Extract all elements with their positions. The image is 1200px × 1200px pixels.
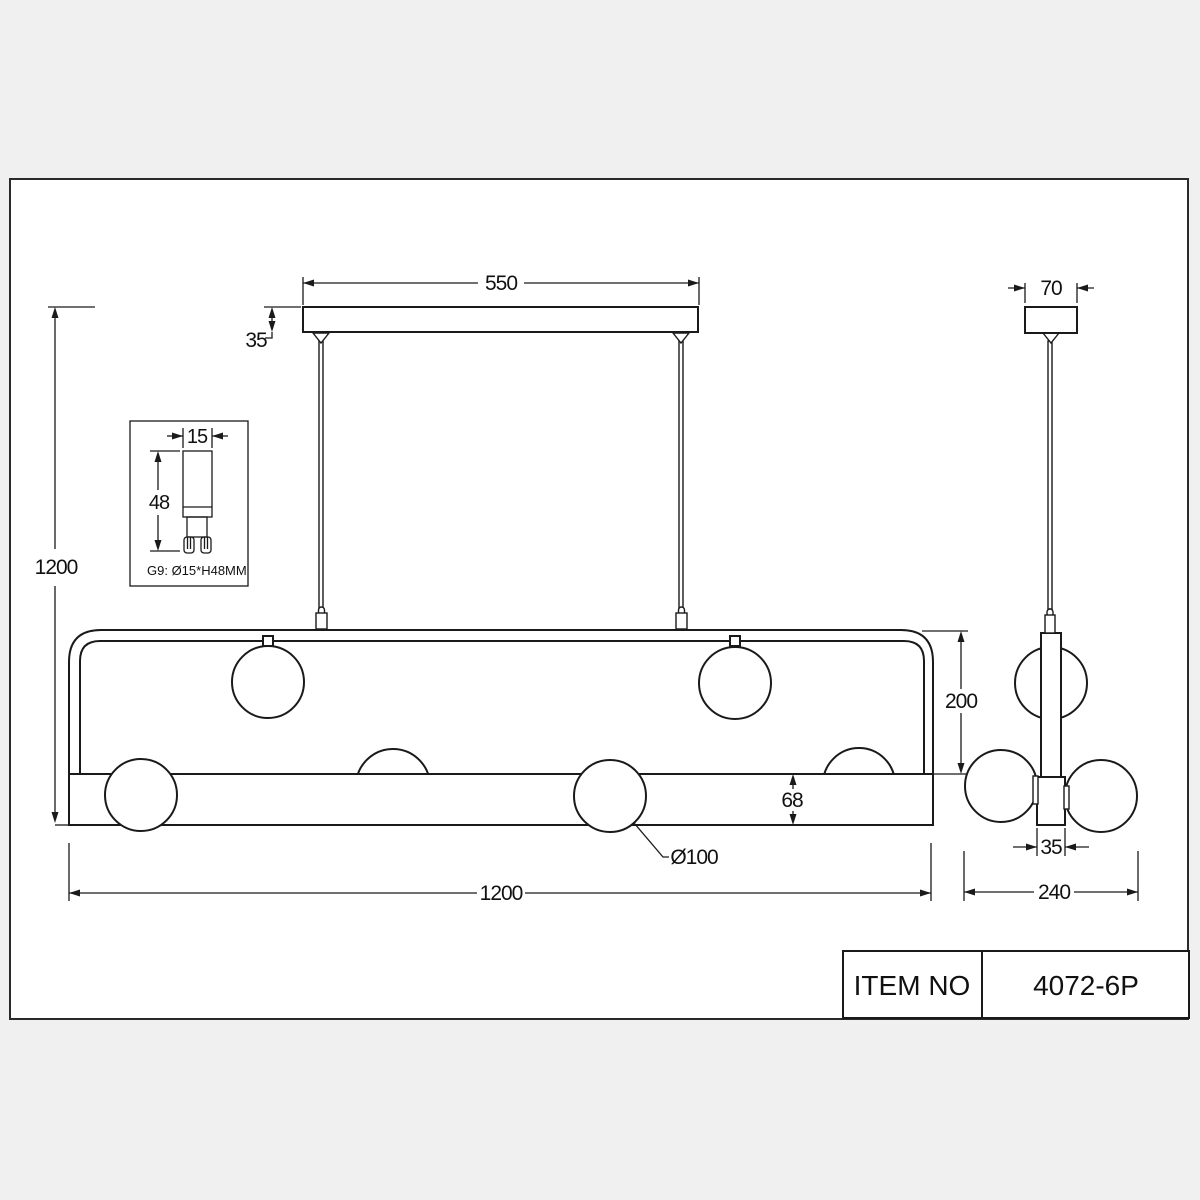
side-tube-block [1037,777,1065,825]
wire-connector-right [676,613,687,629]
dim-68-label: 68 [781,789,803,812]
globe-stem-left [263,636,273,646]
side-socket-left [1033,776,1038,804]
dim-550-label: 550 [485,272,517,295]
dim-48-label: 48 [149,492,170,514]
item-no-label: ITEM NO [854,970,971,1001]
suspension-wire-left [319,341,323,613]
title-block: ITEM NO 4072-6P [843,951,1189,1018]
side-globe-right [1065,760,1137,832]
side-suspension-wire [1048,341,1052,609]
light-bar [69,774,933,825]
globe-on-bar-right [574,760,646,832]
wire-connector-left [316,613,327,629]
technical-drawing-page: 550 35 1200 200 [0,0,1200,1200]
ceiling-canopy-front [303,307,698,332]
side-socket-right [1064,786,1069,809]
dim-d100-label: Ø100 [670,846,718,869]
hanging-globe-right [699,647,771,719]
dim-200-label: 200 [945,690,977,713]
hanging-globe-left [232,646,304,718]
dim-1200v-label: 1200 [35,556,78,579]
dim-15-label: 15 [187,426,208,448]
ceiling-canopy-side [1025,307,1077,333]
item-no-value: 4072-6P [1033,970,1139,1001]
side-wire-connector [1045,615,1055,633]
bulb-spec-label: G9: Ø15*H48MM [147,563,247,578]
side-globe-left [965,750,1037,822]
suspension-wire-right [679,341,683,613]
dim-70-label: 70 [1040,277,1062,300]
dim-35-side-label: 35 [1040,836,1062,859]
side-tube [1041,633,1061,777]
dim-35-label: 35 [245,329,267,352]
globe-stem-right [730,636,740,646]
dim-240-label: 240 [1038,881,1070,904]
globe-on-bar-left [105,759,177,831]
dim-1200h-label: 1200 [480,882,523,905]
drawing-svg: 550 35 1200 200 [0,0,1200,1200]
